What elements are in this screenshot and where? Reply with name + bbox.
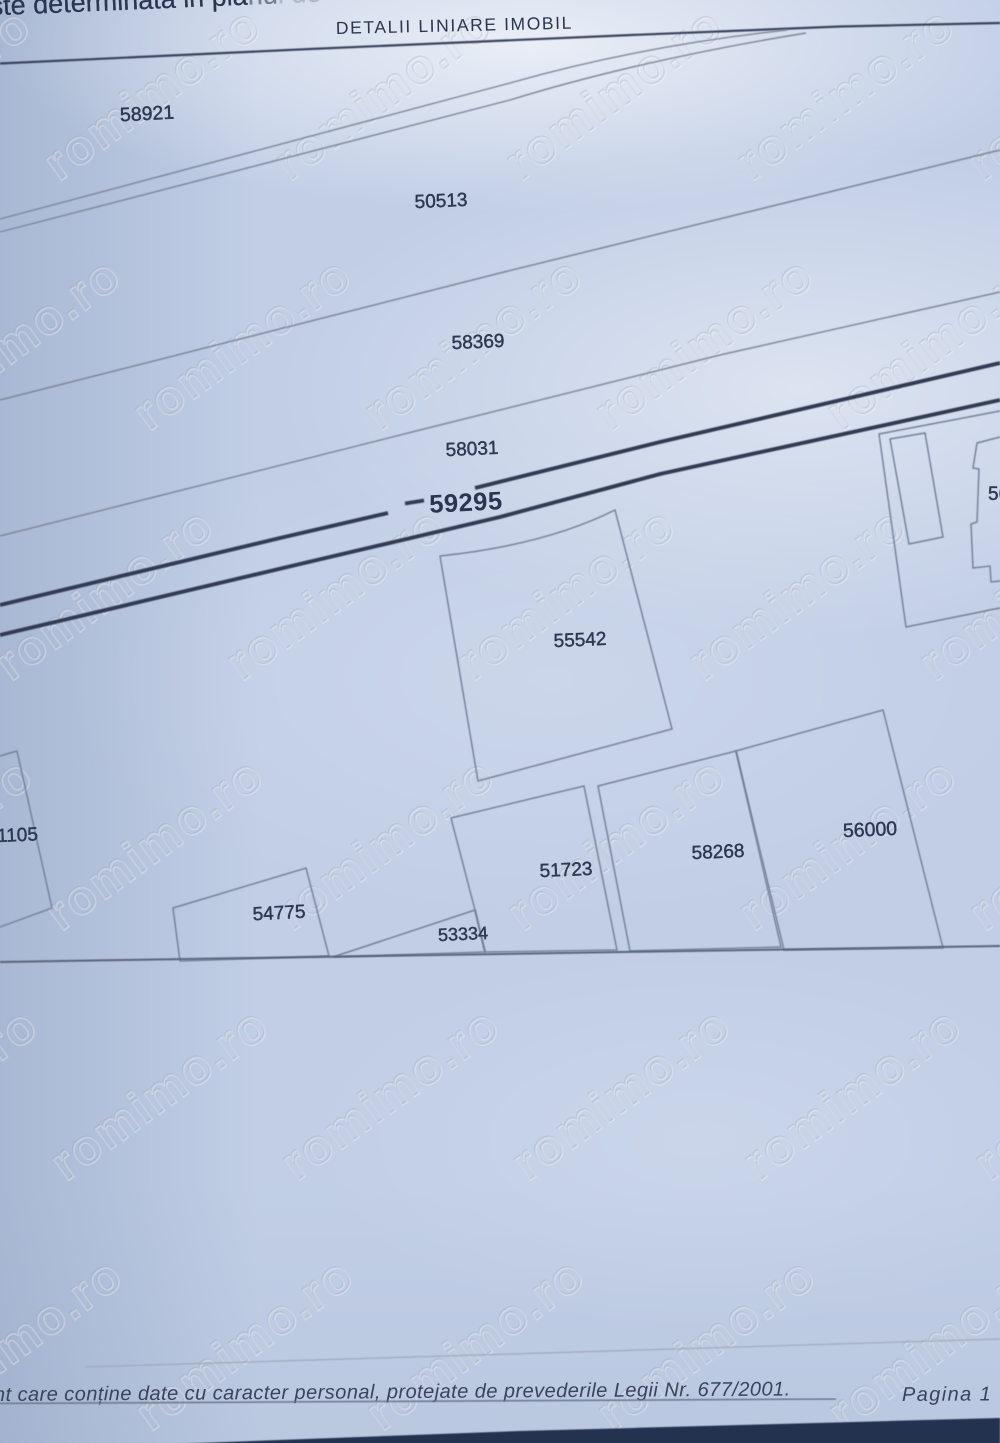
svg-text:romimo.ro: romimo.ro [272, 998, 510, 1191]
svg-text:romimo.ro: romimo.ro [448, 498, 686, 691]
svg-text:romimo.ro: romimo.ro [126, 1248, 364, 1441]
svg-text:romimo.ro: romimo.ro [357, 1248, 595, 1441]
svg-text:romimo.ro: romimo.ro [503, 998, 741, 1191]
svg-text:59295: 59295 [429, 487, 504, 519]
svg-text:romimo.ro: romimo.ro [819, 1248, 1000, 1441]
svg-text:Pagina 1: Pagina 1 [902, 1383, 992, 1406]
svg-text:58268: 58268 [691, 841, 745, 864]
svg-text:romimo.ro: romimo.ro [0, 248, 131, 441]
svg-text:romimo.ro: romimo.ro [41, 998, 279, 1191]
svg-text:56000: 56000 [842, 818, 897, 842]
svg-text:ste determinată in planul de: ste determinată in planul de [0, 0, 322, 21]
svg-text:56: 56 [988, 484, 1000, 505]
svg-text:romimo.ro: romimo.ro [965, 998, 1000, 1191]
svg-text:50513: 50513 [414, 190, 468, 213]
svg-text:51723: 51723 [539, 859, 593, 882]
svg-text:romimo.ro: romimo.ro [0, 0, 41, 191]
svg-text:romimo.ro: romimo.ro [0, 1248, 133, 1441]
svg-text:romimo.ro: romimo.ro [910, 498, 1000, 691]
svg-text:romimo.ro: romimo.ro [588, 1248, 826, 1441]
svg-text:58921: 58921 [119, 102, 174, 127]
svg-text:romimo.ro: romimo.ro [217, 498, 455, 691]
svg-text:romimo.ro: romimo.ro [679, 498, 917, 691]
svg-text:romimo.ro: romimo.ro [729, 748, 967, 941]
svg-text:55542: 55542 [553, 629, 607, 652]
svg-text:romimo.ro: romimo.ro [817, 248, 1000, 441]
svg-text:romimo.ro: romimo.ro [734, 998, 972, 1191]
svg-text:romimo.ro: romimo.ro [124, 248, 362, 441]
svg-text:romimo.ro: romimo.ro [0, 998, 48, 1191]
svg-text:54775: 54775 [252, 902, 306, 926]
svg-text:DETALII LINIARE IMOBIL: DETALII LINIARE IMOBIL [336, 13, 574, 38]
svg-text:romimo.ro: romimo.ro [34, 0, 272, 191]
svg-text:romimo.ro: romimo.ro [960, 748, 1000, 941]
svg-text:romimo.ro: romimo.ro [958, 0, 1000, 191]
svg-text:53334: 53334 [438, 923, 489, 945]
svg-text:58369: 58369 [451, 331, 505, 354]
svg-text:romimo.ro: romimo.ro [36, 748, 274, 941]
svg-text:1105: 1105 [0, 824, 38, 847]
svg-text:58031: 58031 [445, 438, 499, 461]
